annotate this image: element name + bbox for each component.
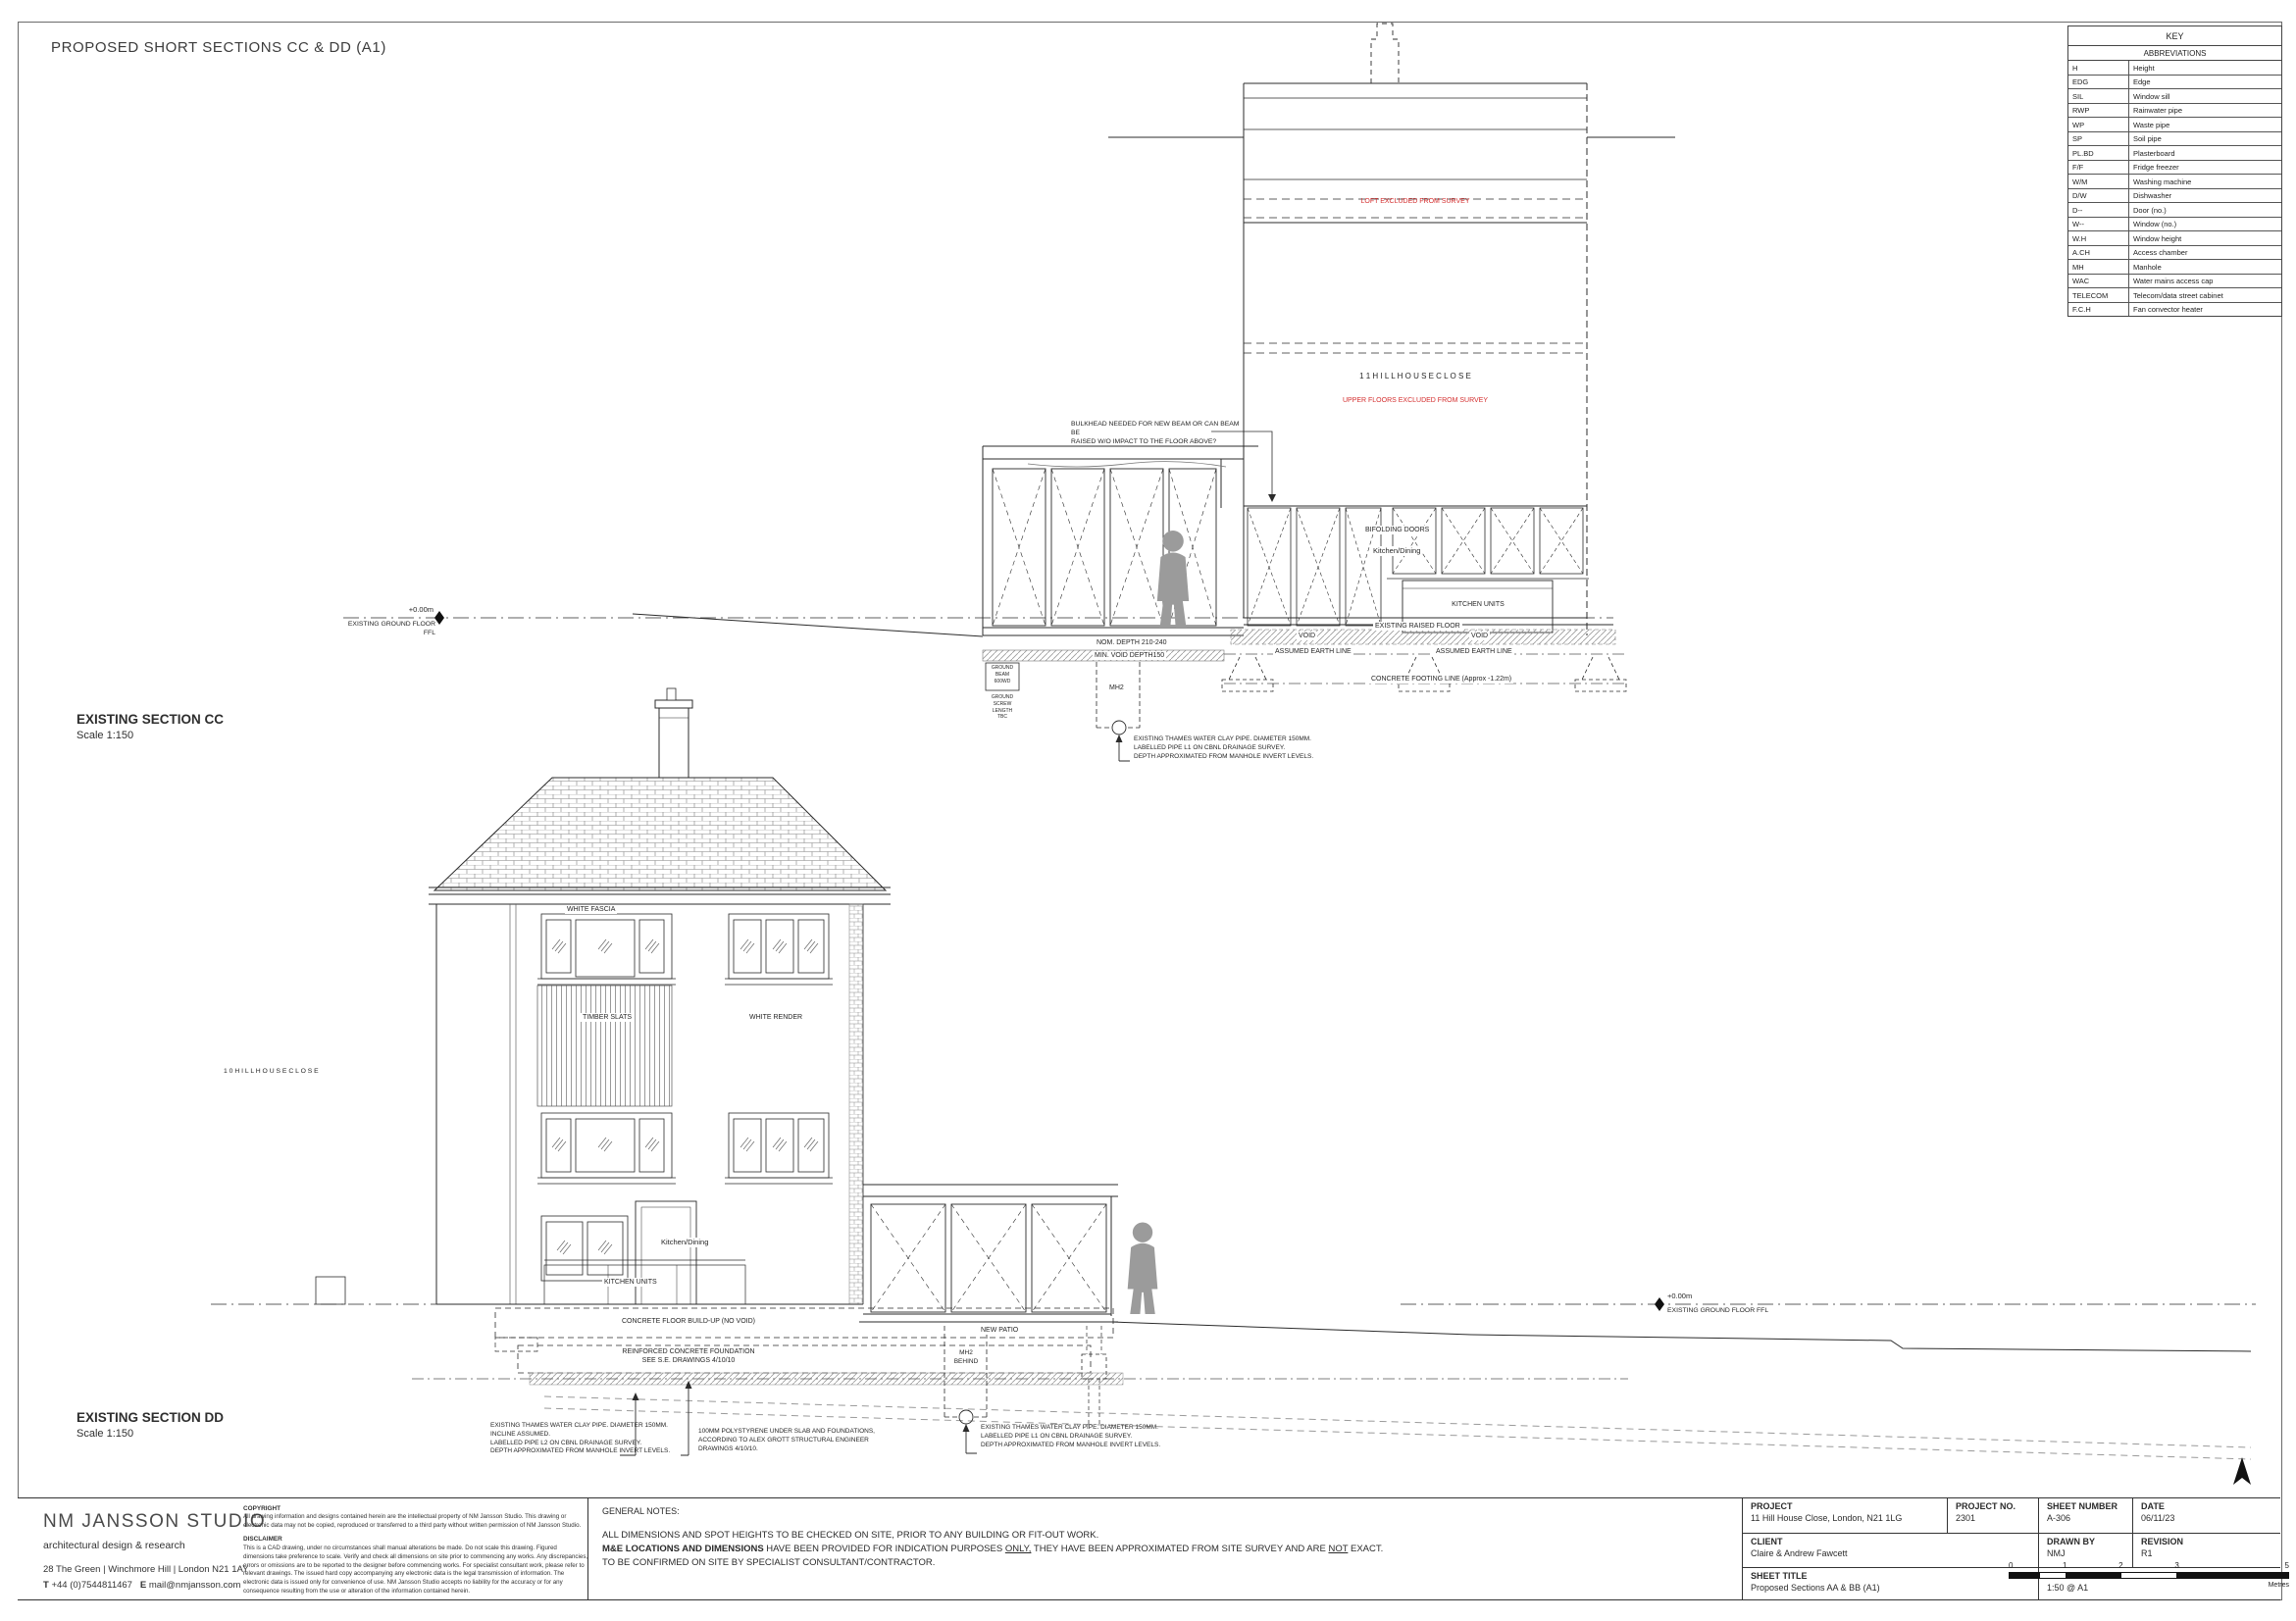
cc-earth-line-right: ASSUMED EARTH LINE bbox=[1434, 647, 1514, 656]
scale-tick: 5 bbox=[2285, 1561, 2289, 1570]
project-no-value: 2301 bbox=[1956, 1513, 2038, 1523]
notes-seg2: THEY HAVE BEEN APPROXIMATED FROM SITE SU… bbox=[1031, 1544, 1328, 1554]
cc-kitchen-dining-label: Kitchen/Dining bbox=[1371, 546, 1422, 556]
sections-drawing bbox=[0, 0, 2296, 1621]
dd-white-fascia: WHITE FASCIA bbox=[565, 905, 617, 914]
date-cell: DATE 06/11/23 bbox=[2132, 1498, 2280, 1533]
key-row: RWPRainwater pipe bbox=[2068, 104, 2281, 119]
dd-datum-value: +0.00m bbox=[1667, 1292, 1692, 1301]
dd-new-patio: NEW PATIO bbox=[979, 1326, 1020, 1335]
legal-text: COPYRIGHT All drawing information and de… bbox=[243, 1504, 588, 1600]
dd-neighbour-house: 1 0 H I L L H O U S E C L O S E bbox=[224, 1067, 319, 1076]
cc-bifolding-doors-label: BIFOLDING DOORS bbox=[1363, 526, 1431, 534]
cc-bifold-doors bbox=[1248, 508, 1381, 626]
revision-label: REVISION bbox=[2141, 1537, 2280, 1546]
revision-value: R1 bbox=[2141, 1548, 2280, 1558]
cc-ground-windows bbox=[1387, 508, 1589, 579]
scale-tick: 1 bbox=[2063, 1561, 2066, 1570]
cc-bulkhead-note: BULKHEAD NEEDED FOR NEW BEAM OR CAN BEAM… bbox=[1071, 420, 1248, 447]
dd-timber-slats bbox=[537, 986, 672, 1106]
project-cell: PROJECT 11 Hill House Close, London, N21… bbox=[1743, 1498, 1947, 1533]
dd-roof bbox=[434, 778, 886, 890]
cc-kitchen-units-label: KITCHEN UNITS bbox=[1412, 600, 1544, 609]
key-row: HHeight bbox=[2068, 61, 2281, 76]
key-row: WPWaste pipe bbox=[2068, 118, 2281, 132]
dd-timber-slats-label: TIMBER SLATS bbox=[581, 1013, 634, 1022]
dd-garden-wall bbox=[316, 1277, 345, 1304]
key-row: MHManhole bbox=[2068, 260, 2281, 275]
scale-bar-unit: Metres bbox=[2009, 1582, 2289, 1589]
cc-datum-label: EXISTING GROUND FLOOR FFL bbox=[341, 620, 435, 637]
key-title: KEY bbox=[2068, 26, 2281, 46]
notes-line1: ALL DIMENSIONS AND SPOT HEIGHTS TO BE CH… bbox=[602, 1530, 1098, 1541]
dd-second-floor-windows bbox=[537, 1113, 833, 1184]
dd-section-scale: Scale 1:150 bbox=[77, 1428, 133, 1440]
cc-nom-depth: NOM. DEPTH 210-240 bbox=[1095, 638, 1169, 647]
scale-tick: 3 bbox=[2174, 1561, 2178, 1570]
general-notes-body: ALL DIMENSIONS AND SPOT HEIGHTS TO BE CH… bbox=[602, 1529, 1397, 1569]
general-notes-heading: GENERAL NOTES: bbox=[602, 1506, 1742, 1516]
key-row: SPSoil pipe bbox=[2068, 132, 2281, 147]
dd-white-render: WHITE RENDER bbox=[749, 1013, 802, 1022]
dd-datum-label: EXISTING GROUND FLOOR FFL bbox=[1667, 1306, 1768, 1315]
sheet-number-value: A-306 bbox=[2047, 1513, 2132, 1523]
cc-upper-note: UPPER FLOORS EXCLUDED FROM SURVEY bbox=[1293, 396, 1538, 405]
project-no-cell: PROJECT NO. 2301 bbox=[1947, 1498, 2038, 1533]
cc-datum-marker bbox=[434, 611, 444, 625]
north-arrow-icon bbox=[2233, 1457, 2251, 1485]
section-dd-drawing bbox=[211, 688, 2256, 1459]
dd-section-heading: EXISTING SECTION DD bbox=[77, 1410, 224, 1425]
dd-kitchen-dining-label: Kitchen/Dining bbox=[659, 1238, 710, 1247]
cc-datum-value: +0.00m bbox=[375, 605, 434, 615]
key-row: D--Door (no.) bbox=[2068, 203, 2281, 218]
sheet-title-value: Proposed Sections AA & BB (A1) bbox=[1751, 1583, 2038, 1593]
key-subtitle: ABBREVIATIONS bbox=[2068, 46, 2281, 61]
email-label: E bbox=[140, 1580, 146, 1591]
sheet-number-label: SHEET NUMBER bbox=[2047, 1501, 2132, 1511]
notes-not: NOT bbox=[1328, 1544, 1348, 1554]
cc-mh2: MH2 bbox=[1109, 684, 1124, 692]
key-row: W.HWindow height bbox=[2068, 231, 2281, 246]
cc-earth-line-left: ASSUMED EARTH LINE bbox=[1273, 647, 1353, 656]
key-row: D/WDishwasher bbox=[2068, 189, 2281, 204]
project-label: PROJECT bbox=[1751, 1501, 1947, 1511]
cc-ground-screw: GROUND SCREW LENGTH TBC bbox=[984, 694, 1021, 721]
dd-ground-floor bbox=[541, 1201, 745, 1304]
key-row: F.C.HFan convector heater bbox=[2068, 303, 2281, 317]
dd-mh2-behind: MH2 BEHIND bbox=[945, 1349, 987, 1367]
studio-panel: NM JANSSON STUDIO architectural design &… bbox=[18, 1498, 588, 1599]
scale-tick: 2 bbox=[2118, 1561, 2122, 1570]
dd-datum-marker bbox=[1655, 1297, 1664, 1311]
drawing-sheet: PROPOSED SHORT SECTIONS CC & DD (A1) bbox=[0, 0, 2296, 1621]
key-rows: HHeightEDGEdgeSILWindow sillRWPRainwater… bbox=[2068, 61, 2281, 316]
sheet-number-cell: SHEET NUMBER A-306 bbox=[2038, 1498, 2132, 1533]
dd-rc-foundation-label: REINFORCED CONCRETE FOUNDATION SEE S.E. … bbox=[549, 1347, 828, 1366]
notes-seg1: HAVE BEEN PROVIDED FOR INDICATION PURPOS… bbox=[764, 1544, 1005, 1554]
client-cell: CLIENT Claire & Andrew Fawcett bbox=[1743, 1533, 2038, 1567]
key-row: WACWater mains access cap bbox=[2068, 275, 2281, 289]
dd-sliding-doors bbox=[871, 1204, 1106, 1312]
key-row: EDGEdge bbox=[2068, 76, 2281, 90]
client-value: Claire & Andrew Fawcett bbox=[1751, 1548, 2038, 1558]
key-table: KEY ABBREVIATIONS HHeightEDGEdgeSILWindo… bbox=[2067, 25, 2282, 317]
cc-section-scale: Scale 1:150 bbox=[77, 730, 133, 741]
scale-bar-ticks: 01235 bbox=[2009, 1561, 2289, 1572]
scale-bar: 01235 Metres bbox=[2009, 1561, 2289, 1589]
sheet-title-label: SHEET TITLE bbox=[1751, 1571, 2038, 1581]
key-row: PL.BDPlasterboard bbox=[2068, 146, 2281, 161]
sheet-title-cell: SHEET TITLE Proposed Sections AA & BB (A… bbox=[1743, 1567, 2038, 1599]
cc-raised-floor-label: EXISTING RAISED FLOOR bbox=[1373, 622, 1462, 631]
cc-house-name: 1 1 H I L L H O U S E C L O S E bbox=[1293, 372, 1538, 382]
dd-pipe-l1-note: EXISTING THAMES WATER CLAY PIPE. DIAMETE… bbox=[981, 1424, 1160, 1449]
key-row: F/FFridge freezer bbox=[2068, 161, 2281, 176]
cc-void-right: VOID bbox=[1469, 632, 1490, 640]
general-notes-panel: GENERAL NOTES: ALL DIMENSIONS AND SPOT H… bbox=[588, 1498, 1743, 1599]
cc-min-void-depth: MIN. VOID DEPTH150 bbox=[1093, 651, 1166, 660]
copyright-body: All drawing information and designs cont… bbox=[243, 1513, 588, 1531]
drawn-by-label: DRAWN BY bbox=[2047, 1537, 2132, 1546]
project-no-label: PROJECT NO. bbox=[1956, 1501, 2038, 1511]
key-row: TELECOMTelecom/data street cabinet bbox=[2068, 288, 2281, 303]
dd-brick-pier bbox=[849, 904, 863, 1304]
date-value: 06/11/23 bbox=[2141, 1513, 2280, 1523]
cc-footing-line-label: CONCRETE FOOTING LINE (Approx -1.22m) bbox=[1369, 675, 1513, 684]
drawn-by-value: NMJ bbox=[2047, 1548, 2132, 1558]
cc-pipe-note: EXISTING THAMES WATER CLAY PIPE. DIAMETE… bbox=[1134, 735, 1313, 761]
notes-me-bold: M&E LOCATIONS AND DIMENSIONS bbox=[602, 1544, 764, 1554]
scale-tick: 0 bbox=[2009, 1561, 2013, 1570]
cc-section-heading: EXISTING SECTION CC bbox=[77, 712, 224, 727]
key-row: W/MWashing machine bbox=[2068, 175, 2281, 189]
key-row: A.CHAccess chamber bbox=[2068, 246, 2281, 261]
key-row: SILWindow sill bbox=[2068, 89, 2281, 104]
scale-bar-strip bbox=[2009, 1572, 2289, 1579]
dd-downpipe bbox=[510, 904, 516, 1304]
studio-email: mail@nmjansson.com bbox=[149, 1580, 241, 1591]
notes-only: ONLY, bbox=[1005, 1544, 1032, 1554]
title-block: NM JANSSON STUDIO architectural design &… bbox=[18, 1497, 2280, 1600]
date-label: DATE bbox=[2141, 1501, 2280, 1511]
key-row: W--Window (no.) bbox=[2068, 218, 2281, 232]
dd-first-floor-windows bbox=[537, 914, 833, 985]
cc-void-left: VOID bbox=[1297, 632, 1317, 640]
dd-kitchen-units-label: KITCHEN UNITS bbox=[602, 1278, 659, 1287]
dd-concrete-floor-label: CONCRETE FLOOR BUILD-UP (NO VOID) bbox=[549, 1317, 828, 1326]
cc-ground-beam: GROUND BEAM 600WD bbox=[987, 665, 1018, 684]
dd-polystyrene-note: 100MM POLYSTYRENE UNDER SLAB AND FOUNDAT… bbox=[698, 1428, 875, 1453]
copyright-heading: COPYRIGHT bbox=[243, 1504, 588, 1513]
disclaimer-body: This is a CAD drawing, under no circumst… bbox=[243, 1545, 588, 1597]
studio-phone: +44 (0)7544811467 bbox=[51, 1580, 132, 1591]
cc-loft-note: LOFT EXCLUDED FROM SURVEY bbox=[1293, 197, 1538, 206]
client-label: CLIENT bbox=[1751, 1537, 2038, 1546]
phone-label: T bbox=[43, 1580, 49, 1591]
dd-pipe-l2-note: EXISTING THAMES WATER CLAY PIPE. DIAMETE… bbox=[490, 1422, 670, 1456]
disclaimer-heading: DISCLAIMER bbox=[243, 1535, 588, 1544]
dd-chimney bbox=[655, 688, 692, 778]
project-value: 11 Hill House Close, London, N21 1LG bbox=[1751, 1513, 1947, 1523]
person-figure bbox=[1128, 1223, 1158, 1315]
